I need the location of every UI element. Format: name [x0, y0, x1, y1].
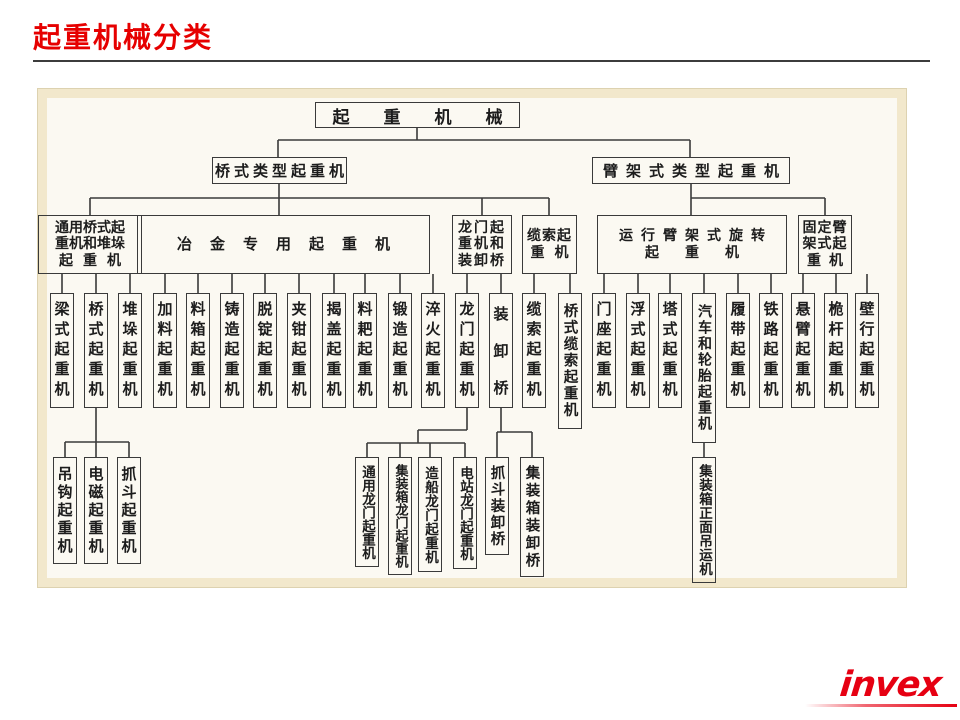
node-fixed-jib-cranes: 固定臂 架式起 重机	[798, 215, 852, 274]
l3-box-lid-lifting: 揭盖起重机	[322, 293, 346, 408]
l3-box-quenching: 淬火起重机	[421, 293, 445, 408]
title-underline	[33, 60, 930, 62]
l3-box-mast: 桅杆起重机	[824, 293, 848, 408]
l4-box-shipyard-gantry: 造船龙门起重机	[418, 457, 442, 572]
l4-box-container-bridge: 集装箱装卸桥	[520, 457, 544, 577]
l4-box-container-gantry: 集装箱龙门起重机	[388, 457, 412, 575]
l3-box-cable: 缆索起重机	[522, 293, 546, 408]
l3-box-forging: 锻造起重机	[388, 293, 412, 408]
l4-box-reach-stacker: 集装箱正面吊运机	[692, 457, 716, 583]
l4-box-grab: 抓斗起重机	[117, 457, 141, 564]
l4-box-power-station-gantry: 电站龙门起重机	[453, 457, 477, 569]
l3-box-tower: 塔式起重机	[658, 293, 682, 408]
l3-box-rake: 料耙起重机	[353, 293, 377, 408]
invex-logo: invex	[838, 665, 943, 705]
l3-box-crawler: 履带起重机	[726, 293, 750, 408]
l3-box-railway: 铁路起重机	[759, 293, 783, 408]
slide: 起重机械分类 起重机械 桥式类型起重机 臂架式类型起重机 通用桥式起 重机和堆垛…	[0, 0, 960, 720]
l3-box-ingot-stripping: 脱锭起重机	[253, 293, 277, 408]
l3-box-bridge: 桥式起重机	[84, 293, 108, 408]
l3-box-beam: 梁式起重机	[50, 293, 74, 408]
l3-box-cantilever: 悬臂起重机	[791, 293, 815, 408]
l3-box-wall: 壁行起重机	[855, 293, 879, 408]
l4-box-general-gantry: 通用龙门起重机	[355, 457, 379, 567]
node-metallurgical-cranes: 冶金专用起重机	[137, 215, 430, 274]
node-travelling-jib-rotating: 运行臂架式旋转 起重机	[597, 215, 787, 274]
l4-box-grab-bridge: 抓斗装卸桥	[485, 457, 509, 555]
node-cable-cranes: 缆索起 重机	[522, 215, 577, 274]
node-bridge-type-cranes: 桥式类型起重机	[212, 157, 347, 184]
l3-box-gantry: 龙门起重机	[455, 293, 479, 408]
l3-box-truck-tire: 汽车和轮胎起重机	[692, 293, 716, 443]
l4-box-magnet: 电磁起重机	[84, 457, 108, 564]
l3-box-portal: 门座起重机	[592, 293, 616, 408]
l4-box-hook: 吊钩起重机	[53, 457, 77, 564]
logo-underline-bar	[805, 704, 957, 707]
l3-box-floating: 浮式起重机	[626, 293, 650, 408]
l3-box-loading-bridge: 装卸桥	[489, 293, 513, 408]
l3-box-material-box: 料箱起重机	[186, 293, 210, 408]
node-root: 起重机械	[315, 102, 520, 128]
l3-box-charging: 加料起重机	[153, 293, 177, 408]
l3-box-casting: 铸造起重机	[220, 293, 244, 408]
l3-box-clamp: 夹钳起重机	[287, 293, 311, 408]
node-jib-type-cranes: 臂架式类型起重机	[592, 157, 790, 184]
node-gantry-loading-bridge: 龙门起 重机和 装卸桥	[452, 215, 512, 274]
l3-box-stacker: 堆垛起重机	[118, 293, 142, 408]
page-title: 起重机械分类	[33, 16, 213, 56]
l3-box-bridge-cable: 桥式缆索起重机	[558, 293, 582, 429]
node-general-bridge-stacker: 通用桥式起 重机和堆垛 起重机	[38, 215, 142, 274]
